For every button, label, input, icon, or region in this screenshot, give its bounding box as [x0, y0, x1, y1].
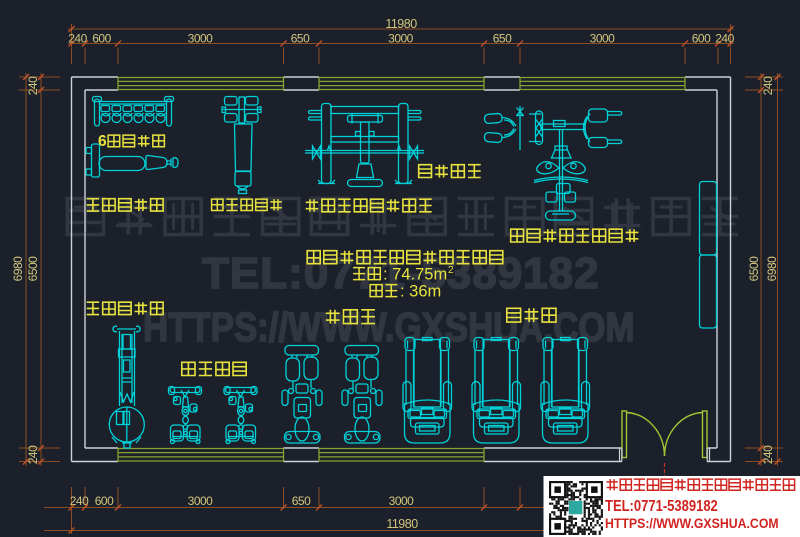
svg-text:3000: 3000	[590, 32, 616, 46]
svg-text:6500: 6500	[26, 256, 40, 282]
svg-text:TEL:0771-5389182: TEL:0771-5389182	[605, 498, 718, 515]
svg-text:HTTPS://WWW.GXSHUA.COM: HTTPS://WWW.GXSHUA.COM	[143, 305, 635, 350]
svg-text:2: 2	[448, 265, 454, 276]
svg-text:11980: 11980	[385, 17, 417, 31]
svg-text:: 74.75m: : 74.75m	[383, 266, 447, 284]
svg-text:240: 240	[761, 445, 775, 464]
svg-text:650: 650	[291, 32, 310, 46]
svg-text:3000: 3000	[389, 494, 415, 508]
svg-text:240: 240	[761, 76, 775, 95]
svg-text:3000: 3000	[188, 494, 214, 508]
svg-text:240: 240	[26, 76, 40, 95]
svg-text:6500: 6500	[747, 256, 761, 282]
svg-text:600: 600	[95, 494, 114, 508]
svg-text:650: 650	[292, 494, 311, 508]
svg-text:240: 240	[68, 32, 87, 46]
svg-text:240: 240	[26, 445, 40, 464]
svg-text:240: 240	[715, 32, 734, 46]
svg-text:600: 600	[92, 32, 111, 46]
svg-text:3000: 3000	[188, 32, 214, 46]
svg-text:HTTPS://WWW.GXSHUA.COM: HTTPS://WWW.GXSHUA.COM	[605, 515, 779, 531]
svg-text:6980: 6980	[765, 256, 779, 282]
svg-text:600: 600	[692, 32, 711, 46]
svg-text:240: 240	[70, 494, 89, 508]
svg-text:6980: 6980	[11, 256, 25, 282]
svg-text:: 36m: : 36m	[400, 283, 441, 301]
svg-text:3000: 3000	[388, 32, 414, 46]
svg-text:6: 6	[98, 133, 107, 150]
svg-text:650: 650	[493, 32, 512, 46]
svg-text:11980: 11980	[386, 517, 418, 531]
